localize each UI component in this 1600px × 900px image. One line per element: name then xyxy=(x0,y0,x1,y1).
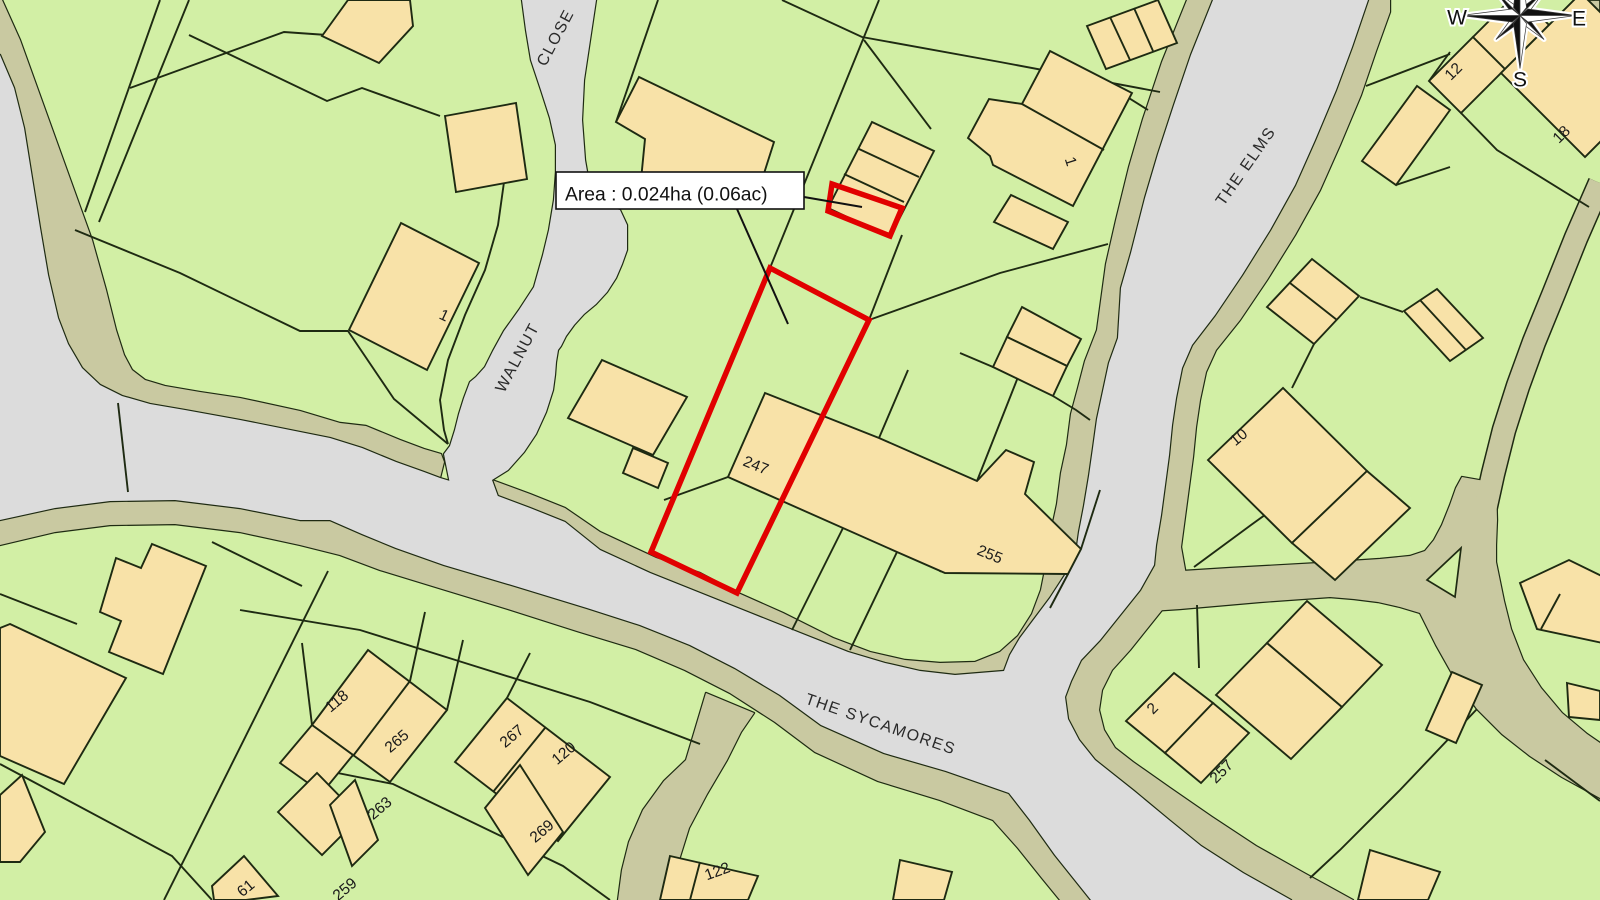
svg-text:S: S xyxy=(1513,69,1527,92)
svg-text:Area : 0.024ha (0.06ac): Area : 0.024ha (0.06ac) xyxy=(565,185,768,206)
svg-text:W: W xyxy=(1447,7,1467,30)
svg-text:E: E xyxy=(1572,8,1586,31)
